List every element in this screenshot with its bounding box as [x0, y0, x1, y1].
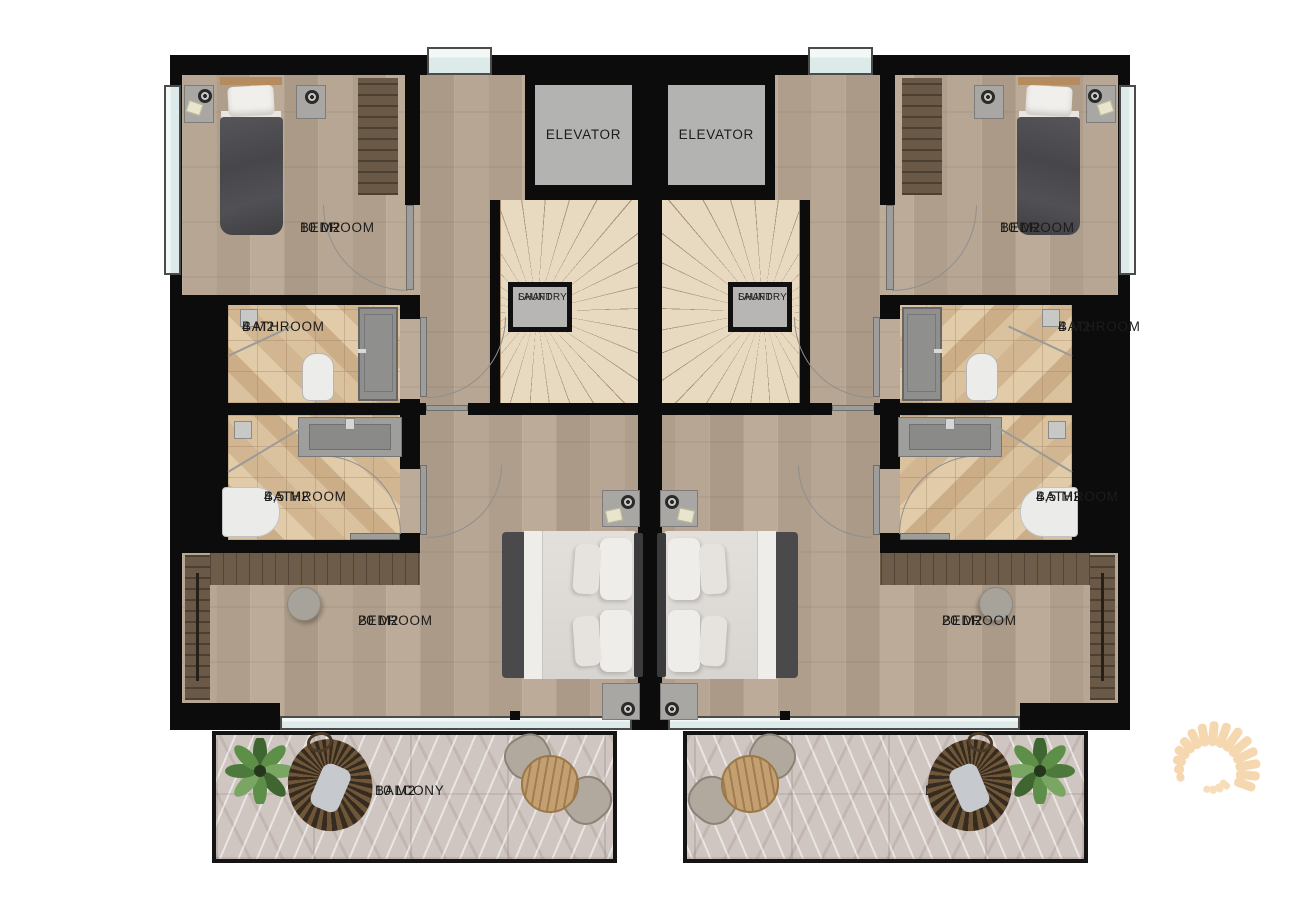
lamp — [665, 495, 679, 509]
door-leaf — [420, 317, 427, 397]
pillow — [227, 85, 275, 117]
window-divider — [780, 711, 790, 720]
door-leaf — [873, 465, 880, 535]
book — [605, 507, 623, 523]
nightstand — [602, 490, 640, 527]
vanity-sink — [298, 417, 402, 457]
decor — [1203, 785, 1211, 793]
wardrobe — [210, 553, 420, 585]
wardrobe — [358, 78, 398, 195]
room-area: 20 M2 — [358, 611, 399, 632]
toilet — [302, 353, 334, 401]
laundry-shaft: LAUNDRY SHAFT — [508, 282, 572, 332]
chair-cushion — [308, 761, 354, 815]
decor — [1005, 738, 1075, 804]
pillow — [668, 610, 700, 672]
sheet-fold — [757, 531, 776, 679]
single-bed — [210, 77, 292, 235]
decor — [225, 738, 295, 804]
nightstand — [1086, 85, 1116, 123]
wardrobe — [1090, 555, 1115, 700]
room-area: 4 M2 — [1058, 317, 1091, 338]
balcony: BALCONY 10 M2 — [212, 731, 617, 863]
door-panel-inset — [907, 314, 936, 392]
bed-headboard — [634, 533, 643, 677]
wall — [880, 533, 900, 553]
decor — [254, 765, 266, 777]
decor — [1034, 765, 1046, 777]
unit-left: ELEVATOR LAUNDRY SHAFT — [170, 55, 650, 867]
laundry-shaft: LAUNDRY SHAFT — [728, 282, 792, 332]
elevator: ELEVATOR — [535, 85, 632, 185]
door-leaf — [873, 317, 880, 397]
wall — [650, 55, 1130, 75]
coffee-table — [721, 755, 779, 813]
duvet — [220, 117, 283, 235]
wall — [880, 540, 1072, 553]
book — [1097, 100, 1115, 116]
door-leaf — [426, 405, 468, 411]
bathroom-door-panel — [358, 307, 398, 401]
room-area: 4,5 M2 — [1036, 487, 1081, 508]
pillow — [572, 543, 601, 595]
nightstand — [660, 683, 698, 720]
wardrobe-handle — [196, 573, 199, 681]
wall — [400, 399, 420, 469]
wall — [880, 295, 1130, 305]
wall — [228, 540, 420, 553]
double-bed — [657, 530, 800, 680]
plant-icon — [1005, 738, 1075, 804]
laundry-line2: SHAFT — [518, 291, 552, 304]
table-set — [685, 735, 795, 827]
laundry-line2: SHAFT — [738, 291, 772, 304]
laundry-shaft-label: LAUNDRY SHAFT — [733, 287, 787, 291]
pillow — [668, 538, 700, 600]
book — [677, 507, 695, 523]
bed-headboard — [1018, 77, 1080, 85]
door-handle — [934, 349, 942, 353]
window-divider — [510, 711, 520, 720]
coffee-table — [521, 755, 579, 813]
lamp — [665, 702, 679, 716]
wall — [490, 200, 500, 415]
wall — [880, 75, 895, 205]
nightstand — [296, 85, 326, 119]
unit-right: ELEVATOR LAUNDRY SHAFT — [650, 55, 1130, 867]
wall — [800, 200, 810, 415]
wall — [765, 85, 775, 185]
wall — [170, 55, 650, 75]
wall — [655, 185, 775, 200]
elevator-label: ELEVATOR — [679, 125, 754, 146]
door-handle — [358, 349, 366, 353]
nightstand — [660, 490, 698, 527]
elevator-label: ELEVATOR — [546, 125, 621, 146]
door-leaf — [900, 533, 950, 540]
pillow — [698, 543, 727, 595]
wall — [1020, 703, 1130, 730]
wall — [880, 399, 900, 469]
lamp — [1088, 89, 1102, 103]
bed-headboard — [657, 533, 666, 677]
bathroom-door-panel — [902, 307, 942, 401]
window — [1119, 85, 1136, 275]
decor — [1150, 712, 1270, 832]
wardrobe — [185, 555, 210, 700]
shower-head — [1048, 421, 1066, 439]
chair-handle — [305, 730, 335, 755]
book — [186, 100, 204, 116]
wall — [228, 403, 400, 415]
window — [808, 47, 873, 75]
lamp — [621, 495, 635, 509]
floor-plan-page: ELEVATOR LAUNDRY SHAFT — [0, 0, 1300, 919]
decor — [1203, 785, 1211, 793]
wall — [400, 305, 420, 319]
shower-head — [234, 421, 252, 439]
vanity-sink — [898, 417, 1002, 457]
chair-handle — [965, 730, 995, 755]
window — [427, 47, 492, 75]
bed-runner — [774, 532, 798, 678]
wall — [525, 75, 632, 85]
lamp — [981, 90, 995, 104]
room-area: 10 M2 — [375, 781, 416, 802]
wardrobe — [880, 553, 1090, 585]
pillow — [572, 615, 601, 667]
decor — [1005, 738, 1075, 804]
wall — [170, 703, 280, 730]
pillow — [698, 615, 727, 667]
wall — [900, 403, 1072, 415]
pillow — [1025, 85, 1073, 117]
double-bed — [500, 530, 643, 680]
wall — [170, 295, 228, 553]
window-balcony-door — [280, 716, 632, 730]
wall — [170, 295, 420, 305]
door-leaf — [350, 533, 400, 540]
wall — [662, 55, 668, 200]
sheet-fold — [524, 531, 543, 679]
faucet — [345, 418, 355, 430]
pillow — [600, 538, 632, 600]
decor — [1203, 778, 1231, 794]
wall — [668, 75, 775, 85]
chair-cushion — [947, 761, 993, 815]
wall — [468, 403, 650, 415]
door-leaf — [420, 465, 427, 535]
laundry-shaft-label: LAUNDRY SHAFT — [513, 287, 567, 291]
floor-plan: ELEVATOR LAUNDRY SHAFT — [170, 55, 1130, 867]
wall — [632, 55, 638, 200]
wall — [874, 403, 880, 415]
elevator: ELEVATOR — [668, 85, 765, 185]
stool — [287, 587, 321, 621]
wardrobe — [902, 78, 942, 195]
wall — [650, 403, 832, 415]
wall — [400, 533, 420, 553]
table-set — [505, 735, 615, 827]
bed-headboard — [220, 77, 282, 85]
wall — [405, 75, 420, 205]
door-leaf — [832, 405, 874, 411]
room-area: 4 M2 — [242, 317, 275, 338]
plant-icon — [225, 738, 295, 804]
wall — [525, 85, 535, 185]
single-bed — [1008, 77, 1090, 235]
room-area: 10 M2 — [300, 218, 341, 239]
window — [164, 85, 181, 275]
wall — [880, 305, 900, 319]
room-area: 4,5 M2 — [264, 487, 309, 508]
room-area: 20 M2 — [942, 611, 983, 632]
balcony: BALCONY 10 M2 — [683, 731, 1088, 863]
toilet — [966, 353, 998, 401]
window-balcony-door — [668, 716, 1020, 730]
wardrobe-handle — [1101, 573, 1104, 681]
lamp — [621, 702, 635, 716]
nightstand — [602, 683, 640, 720]
bed-runner — [502, 532, 526, 678]
room-area: 10 M2 — [1000, 218, 1041, 239]
faucet — [945, 418, 955, 430]
pillow — [600, 610, 632, 672]
lamp — [305, 90, 319, 104]
door-panel-inset — [364, 314, 393, 392]
nightstand — [974, 85, 1004, 119]
wall — [525, 185, 645, 200]
decor — [225, 738, 295, 804]
sun-logo-icon — [1150, 712, 1270, 837]
decor — [1172, 721, 1261, 793]
